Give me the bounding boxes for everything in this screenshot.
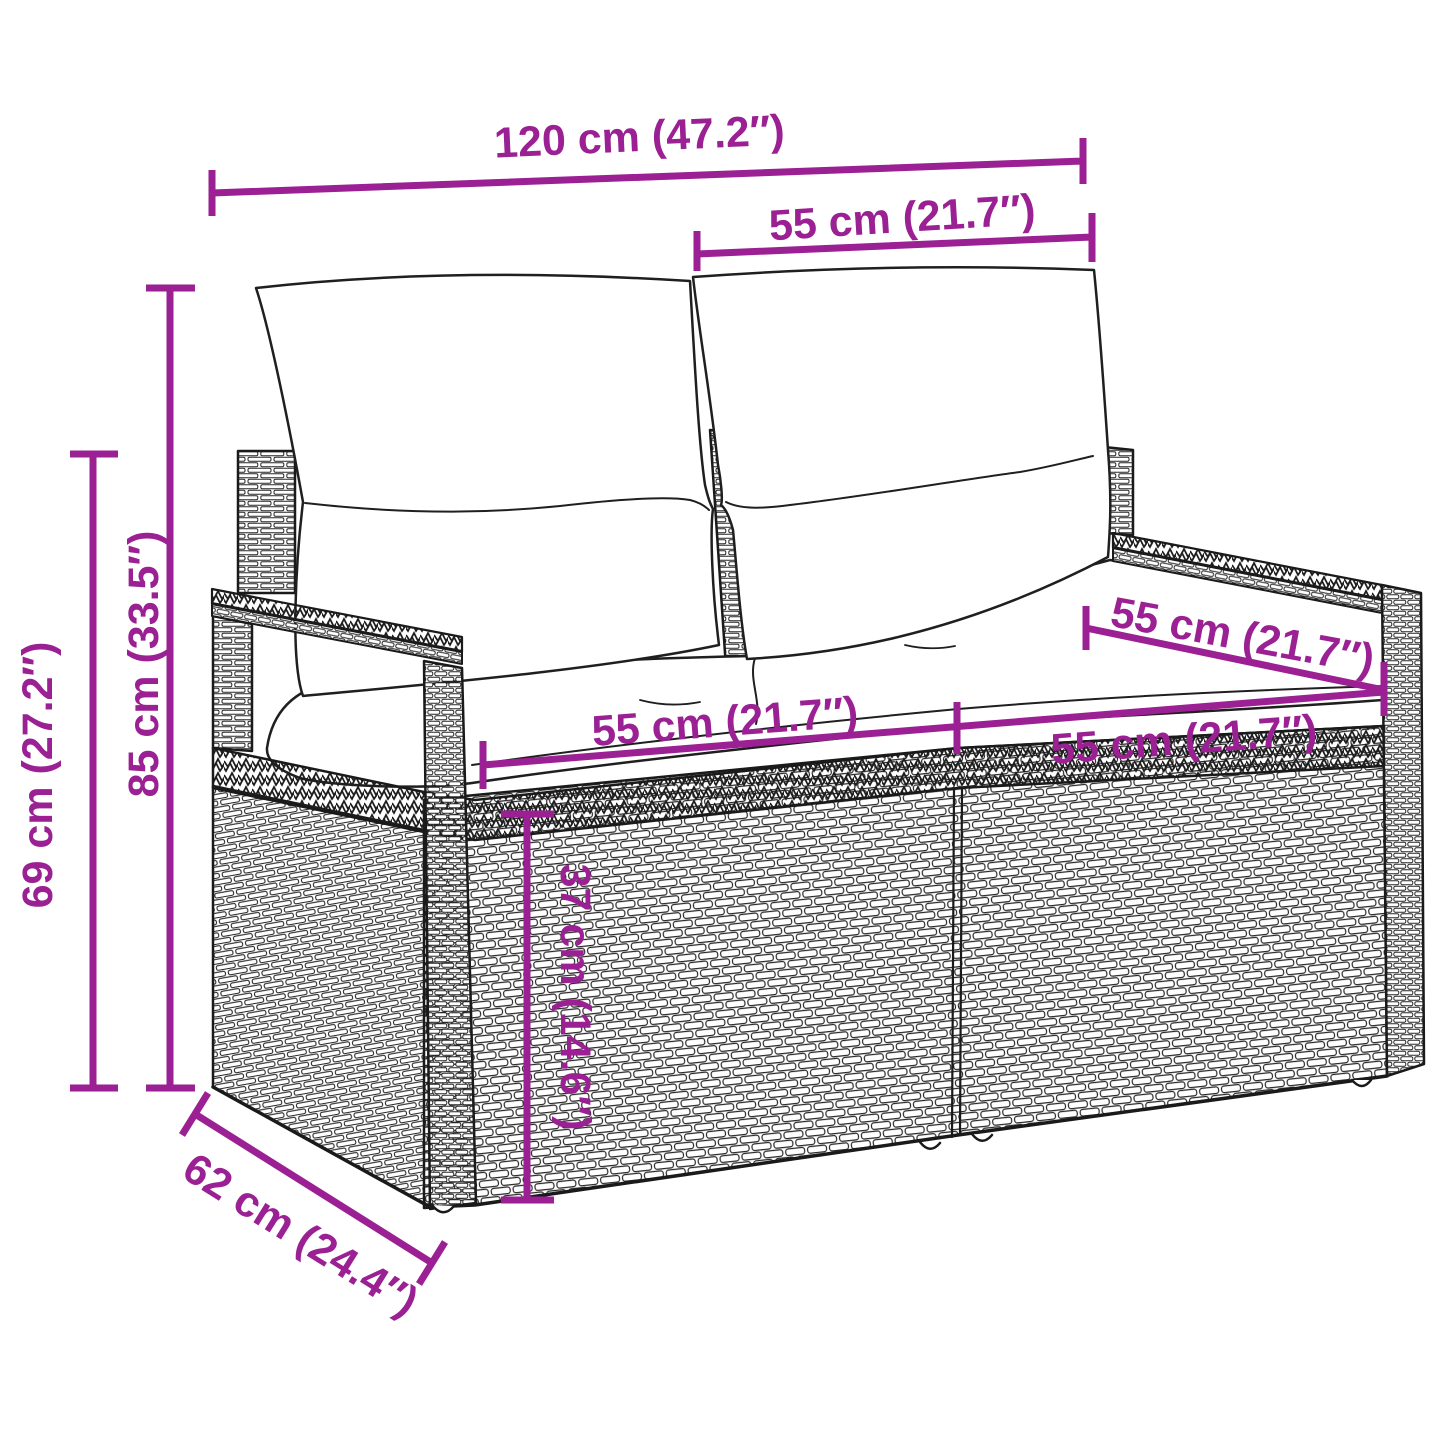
svg-text:37 cm (14.6″): 37 cm (14.6″) (551, 864, 599, 1131)
svg-text:85 cm (33.5″): 85 cm (33.5″) (120, 531, 168, 798)
svg-text:69 cm (27.2″): 69 cm (27.2″) (14, 642, 62, 909)
